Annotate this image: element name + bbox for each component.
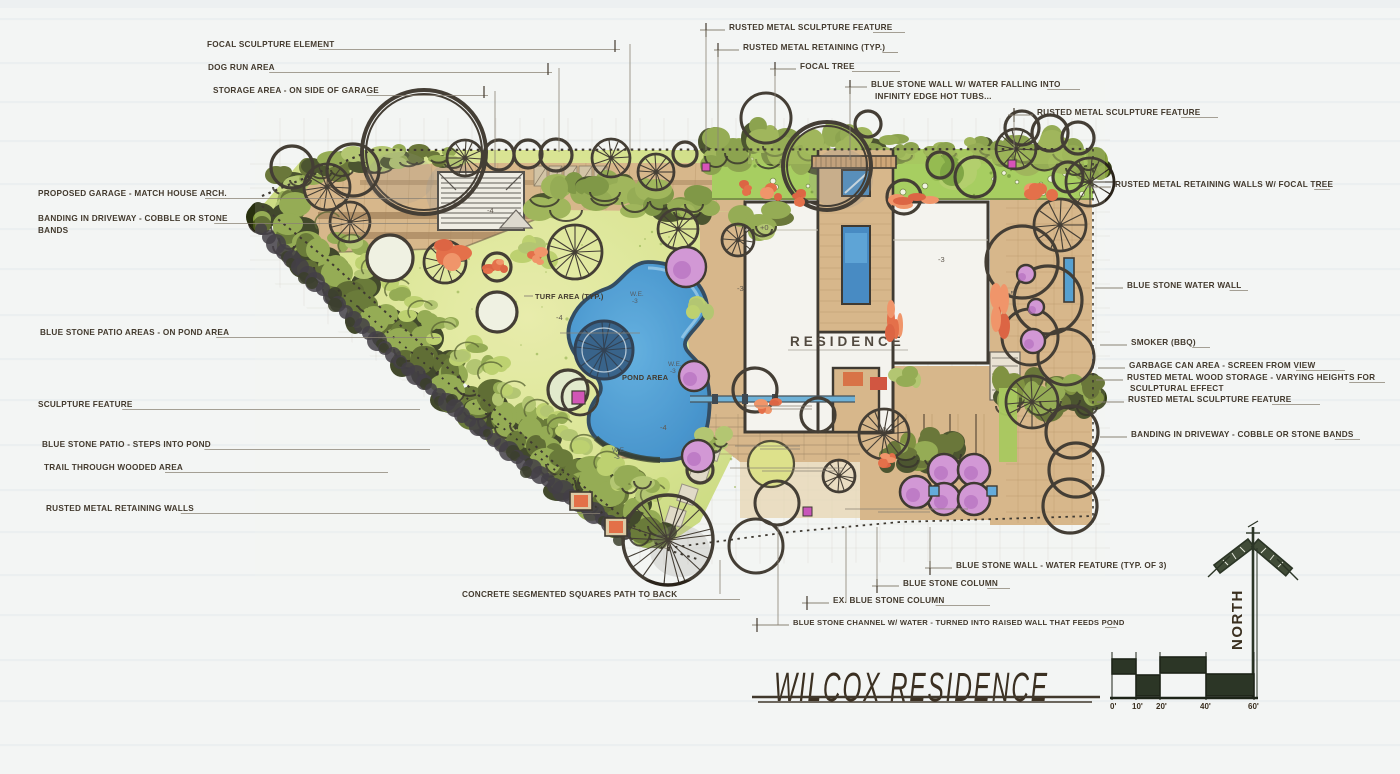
svg-text:STORAGE AREA - ON SIDE OF GARA: STORAGE AREA - ON SIDE OF GARAGE (213, 86, 379, 95)
svg-text:BANDS: BANDS (38, 226, 69, 235)
svg-text:DOG RUN AREA: DOG RUN AREA (208, 63, 275, 72)
svg-text:WILCOX RESIDENCE: WILCOX RESIDENCE (774, 666, 1049, 711)
svg-text:SCULPTURE FEATURE: SCULPTURE FEATURE (38, 400, 133, 409)
svg-text:SCULPTURAL EFFECT: SCULPTURAL EFFECT (1130, 384, 1224, 393)
svg-text:EX. BLUE STONE COLUMN: EX. BLUE STONE COLUMN (833, 596, 945, 605)
svg-text:60': 60' (1248, 702, 1259, 711)
svg-text:BLUE STONE WALL W/ WATER FALLI: BLUE STONE WALL W/ WATER FALLING INTO (871, 80, 1061, 89)
svg-text:RUSTED METAL SCULPTURE FEATURE: RUSTED METAL SCULPTURE FEATURE (1128, 395, 1292, 404)
svg-text:40': 40' (1200, 702, 1211, 711)
svg-text:RUSTED METAL RETAINING WALLS: RUSTED METAL RETAINING WALLS (46, 504, 194, 513)
svg-text:FOCAL SCULPTURE ELEMENT: FOCAL SCULPTURE ELEMENT (207, 40, 335, 49)
svg-text:BLUE STONE COLUMN: BLUE STONE COLUMN (903, 579, 998, 588)
svg-text:PROPOSED GARAGE - MATCH HOUSE: PROPOSED GARAGE - MATCH HOUSE ARCH. (38, 189, 227, 198)
svg-text:RUSTED METAL WOOD STORAGE - VA: RUSTED METAL WOOD STORAGE - VARYING HEIG… (1127, 373, 1375, 382)
svg-text:RUSTED METAL RETAINING WALLS W: RUSTED METAL RETAINING WALLS W/ FOCAL TR… (1115, 180, 1333, 189)
svg-text:TURF AREA (TYP.): TURF AREA (TYP.) (535, 292, 604, 301)
svg-text:BANDING IN DRIVEWAY - COBBLE O: BANDING IN DRIVEWAY - COBBLE OR STONE BA… (1131, 430, 1354, 439)
svg-text:RUSTED METAL SCULPTURE FEATURE: RUSTED METAL SCULPTURE FEATURE (729, 23, 893, 32)
svg-text:SMOKER (BBQ): SMOKER (BBQ) (1131, 338, 1196, 347)
svg-text:FOCAL TREE: FOCAL TREE (800, 62, 855, 71)
svg-text:RUSTED METAL SCULPTURE FEATURE: RUSTED METAL SCULPTURE FEATURE (1037, 108, 1201, 117)
svg-text:RUSTED METAL RETAINING (TYP.): RUSTED METAL RETAINING (TYP.) (743, 43, 885, 52)
svg-text:GARBAGE CAN AREA - SCREEN FROM: GARBAGE CAN AREA - SCREEN FROM VIEW (1129, 361, 1315, 370)
svg-text:20': 20' (1156, 702, 1167, 711)
svg-text:TRAIL THROUGH WOODED AREA: TRAIL THROUGH WOODED AREA (44, 463, 183, 472)
svg-text:10': 10' (1132, 702, 1143, 711)
svg-text:0': 0' (1110, 702, 1116, 711)
svg-text:BLUE STONE PATIO - STEPS INTO: BLUE STONE PATIO - STEPS INTO POND (42, 440, 211, 449)
svg-text:NORTH: NORTH (1229, 589, 1246, 650)
svg-text:BLUE STONE PATIO AREAS - ON PO: BLUE STONE PATIO AREAS - ON POND AREA (40, 328, 229, 337)
svg-text:BANDING IN DRIVEWAY - COBBLE O: BANDING IN DRIVEWAY - COBBLE OR STONE (38, 214, 228, 223)
svg-text:BLUE STONE WALL - WATER FEATUR: BLUE STONE WALL - WATER FEATURE (TYP. OF… (956, 561, 1167, 570)
svg-text:INFINITY EDGE HOT TUBS...: INFINITY EDGE HOT TUBS... (875, 92, 992, 101)
svg-text:BLUE STONE CHANNEL W/ WATER -: BLUE STONE CHANNEL W/ WATER - TURNED INT… (793, 618, 1125, 627)
svg-text:BLUE STONE WATER WALL: BLUE STONE WATER WALL (1127, 281, 1242, 290)
svg-text:CONCRETE SEGMENTED SQUARES PAT: CONCRETE SEGMENTED SQUARES PATH TO BACK (462, 590, 677, 599)
svg-text:POND AREA: POND AREA (622, 373, 669, 382)
